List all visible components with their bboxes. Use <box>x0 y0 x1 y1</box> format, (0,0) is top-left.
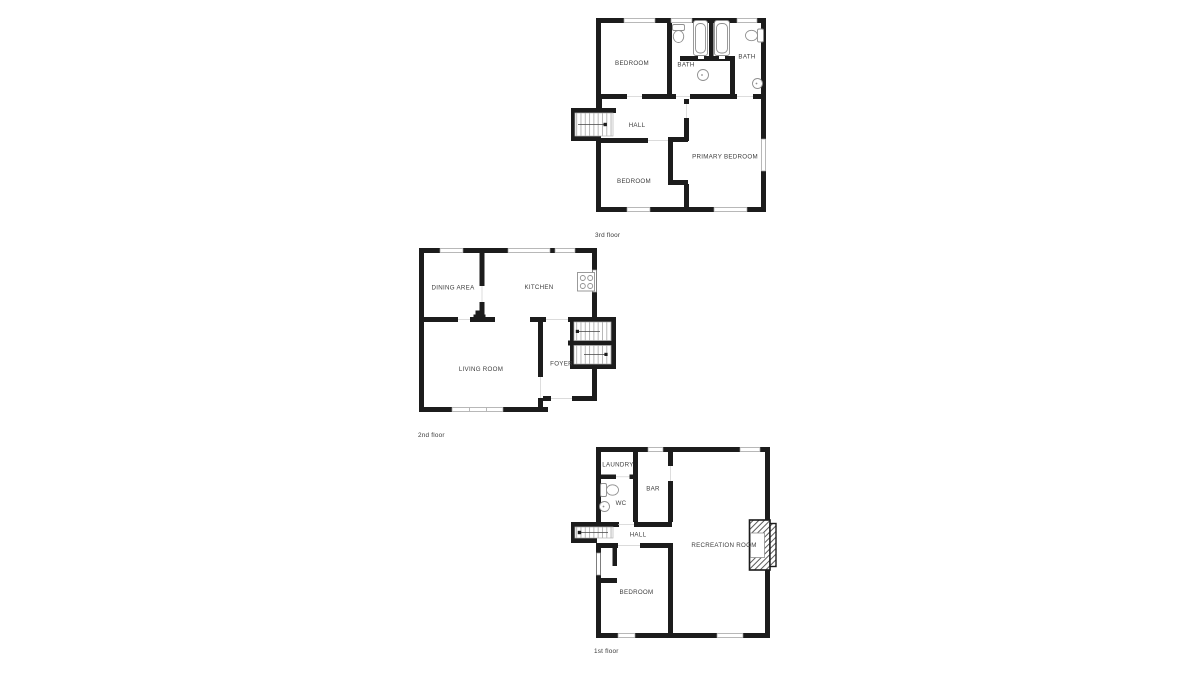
room-labels: LAUNDRY BAR WC HALL RECREATION ROOM BEDR… <box>602 462 756 597</box>
staircase <box>575 113 613 136</box>
floorplan-canvas: BEDROOM BATH BATH HALL BEDROOM PRIMARY B… <box>0 0 1200 674</box>
floor-plan-2nd: DINING AREA KITCHEN LIVING ROOM FOYER 2n… <box>418 248 616 439</box>
room-label-bedroom: BEDROOM <box>620 589 654 596</box>
room-label-bedroom-2: BEDROOM <box>617 178 651 185</box>
room-label-living-room: LIVING ROOM <box>459 366 503 373</box>
room-labels: DINING AREA KITCHEN LIVING ROOM FOYER <box>432 284 574 373</box>
toilet-icon <box>673 25 685 43</box>
floor-plan-3rd: BEDROOM BATH BATH HALL BEDROOM PRIMARY B… <box>571 18 766 239</box>
toilet-icon <box>601 484 619 497</box>
room-label-laundry: LAUNDRY <box>602 462 633 469</box>
floorplan-page: BEDROOM BATH BATH HALL BEDROOM PRIMARY B… <box>0 0 1200 674</box>
bathtub-icon <box>694 21 708 56</box>
floor-caption-3rd: 3rd floor <box>595 232 621 239</box>
bathtub-icon <box>715 21 730 56</box>
room-label-foyer: FOYER <box>550 361 573 368</box>
sink-icon <box>600 502 610 512</box>
room-label-primary-bedroom: PRIMARY BEDROOM <box>692 154 758 161</box>
room-label-hall: HALL <box>629 122 646 129</box>
room-label-bedroom-1: BEDROOM <box>615 60 649 67</box>
door-thresholds <box>458 286 572 399</box>
door-thresholds <box>627 97 753 141</box>
stove-icon <box>578 273 595 292</box>
room-label-hall: HALL <box>630 532 647 539</box>
room-label-recreation-room: RECREATION ROOM <box>691 542 756 549</box>
floor-caption-1st: 1st floor <box>594 648 619 655</box>
room-label-bar: BAR <box>646 486 660 493</box>
room-label-kitchen: KITCHEN <box>524 284 553 291</box>
floor-caption-2nd: 2nd floor <box>418 432 445 439</box>
room-label-bath-1: BATH <box>677 62 694 69</box>
sink-icon <box>698 70 709 81</box>
floor-plan-1st: LAUNDRY BAR WC HALL RECREATION ROOM BEDR… <box>571 447 776 655</box>
room-label-wc: WC <box>616 500 627 507</box>
toilet-icon <box>746 29 764 42</box>
sink-icon <box>753 79 763 89</box>
room-label-dining-area: DINING AREA <box>432 285 476 292</box>
room-label-bath-2: BATH <box>738 54 755 61</box>
staircase <box>575 527 613 538</box>
